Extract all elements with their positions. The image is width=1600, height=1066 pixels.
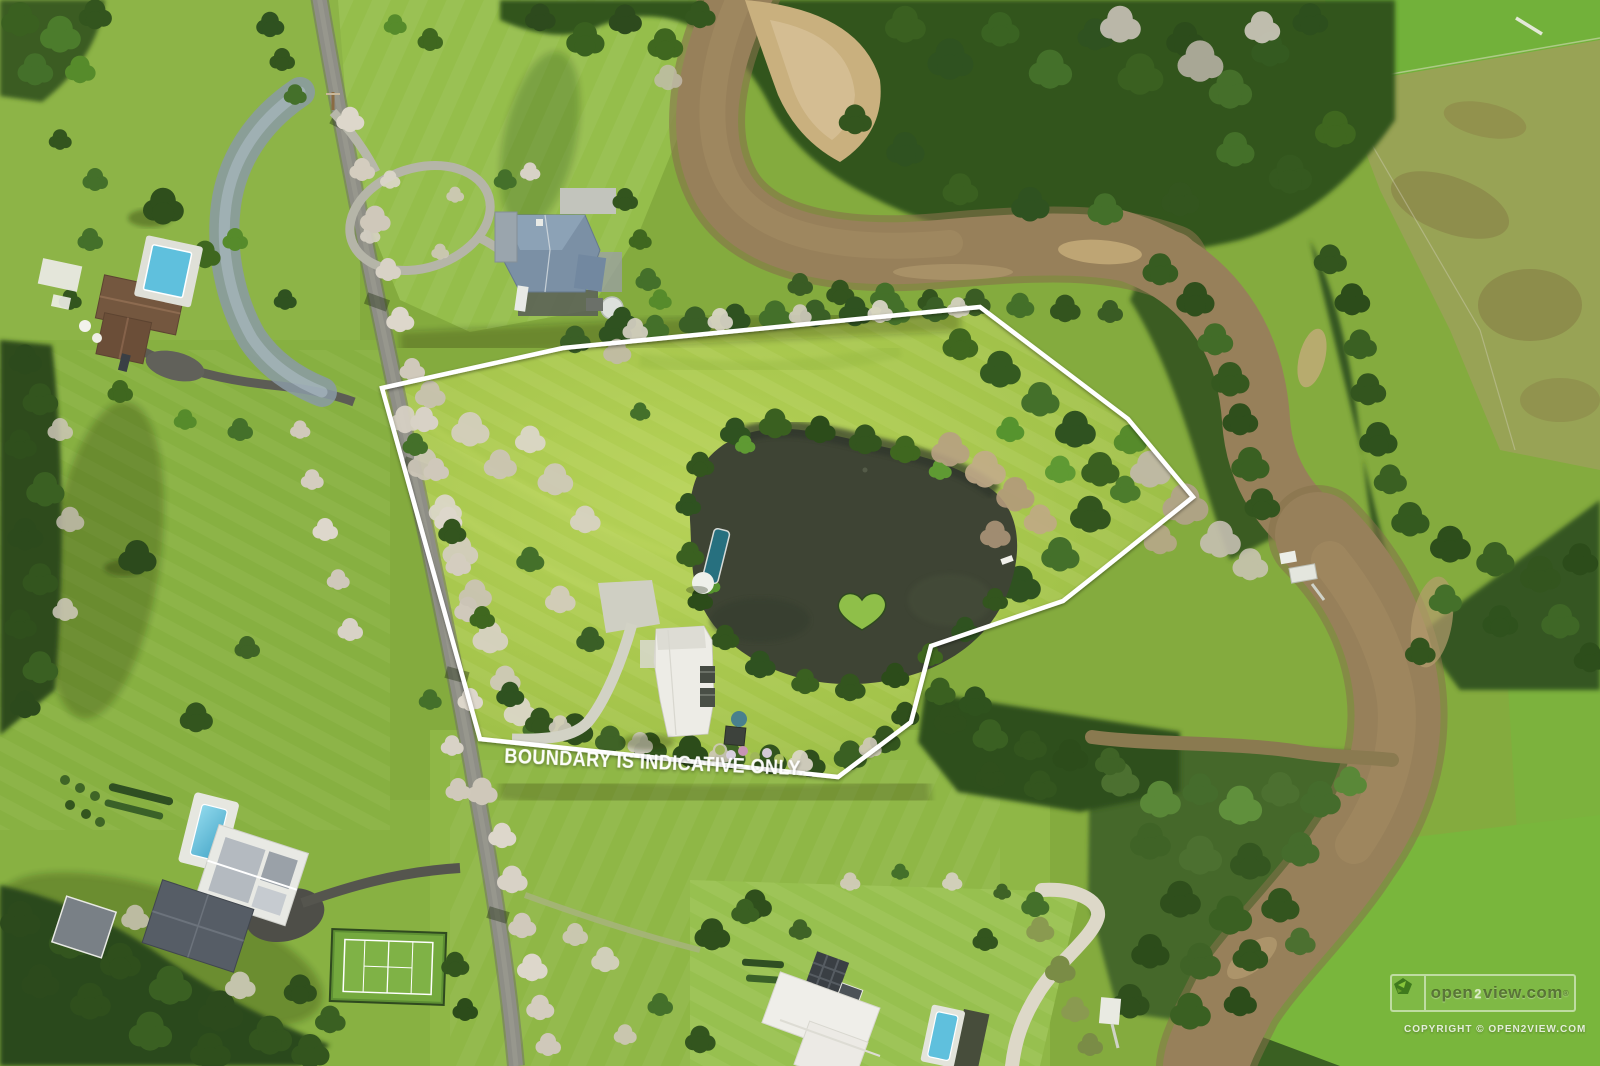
tennis-court [330,929,446,1005]
open2view-brand: open2view.com® [1426,976,1574,1010]
round-tank [731,711,747,727]
aerial-scene-svg: BOUNDARY IS INDICATIVE ONLY. [0,0,1600,1066]
brand-two: 2 [1473,986,1483,1001]
patio-umbrella [79,320,91,332]
brand-view-com: view.com [1483,983,1563,1003]
open2view-logo-icon [1392,976,1426,1010]
patio-umbrella [92,333,102,343]
north-pad [560,188,616,214]
garden-shed [586,298,603,311]
copyright-text: COPYRIGHT © OPEN2VIEW.COM [1404,1024,1586,1035]
aerial-photo: BOUNDARY IS INDICATIVE ONLY. open2view.c… [0,0,1600,1066]
brand-registered-mark: ® [1563,989,1569,998]
open2view-watermark: open2view.com® [1390,974,1576,1012]
brand-open: open [1431,983,1474,1003]
dark-shed [724,726,746,746]
